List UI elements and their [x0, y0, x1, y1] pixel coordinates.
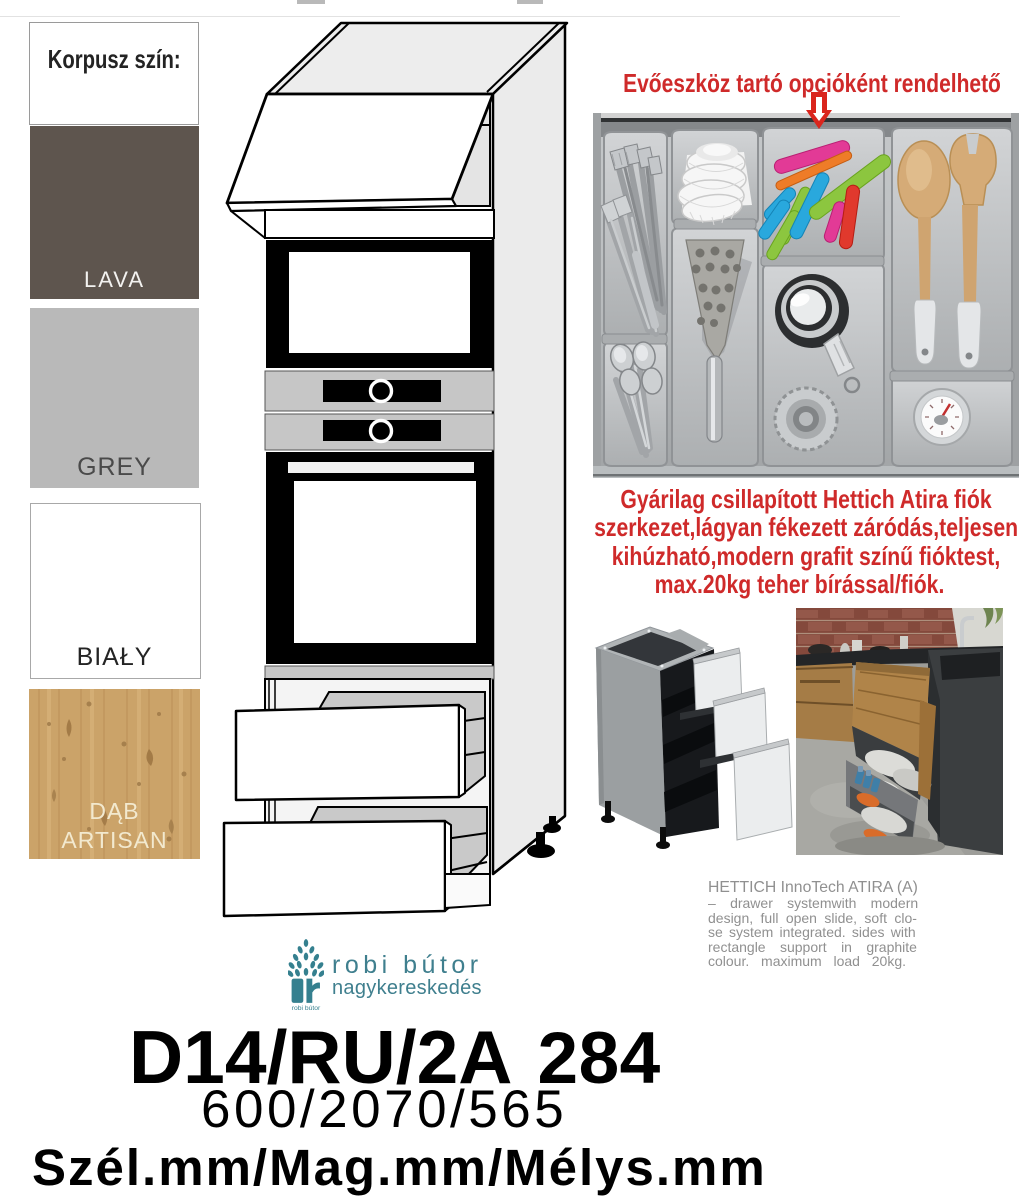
svg-text:robi bútor: robi bútor: [292, 1005, 321, 1012]
